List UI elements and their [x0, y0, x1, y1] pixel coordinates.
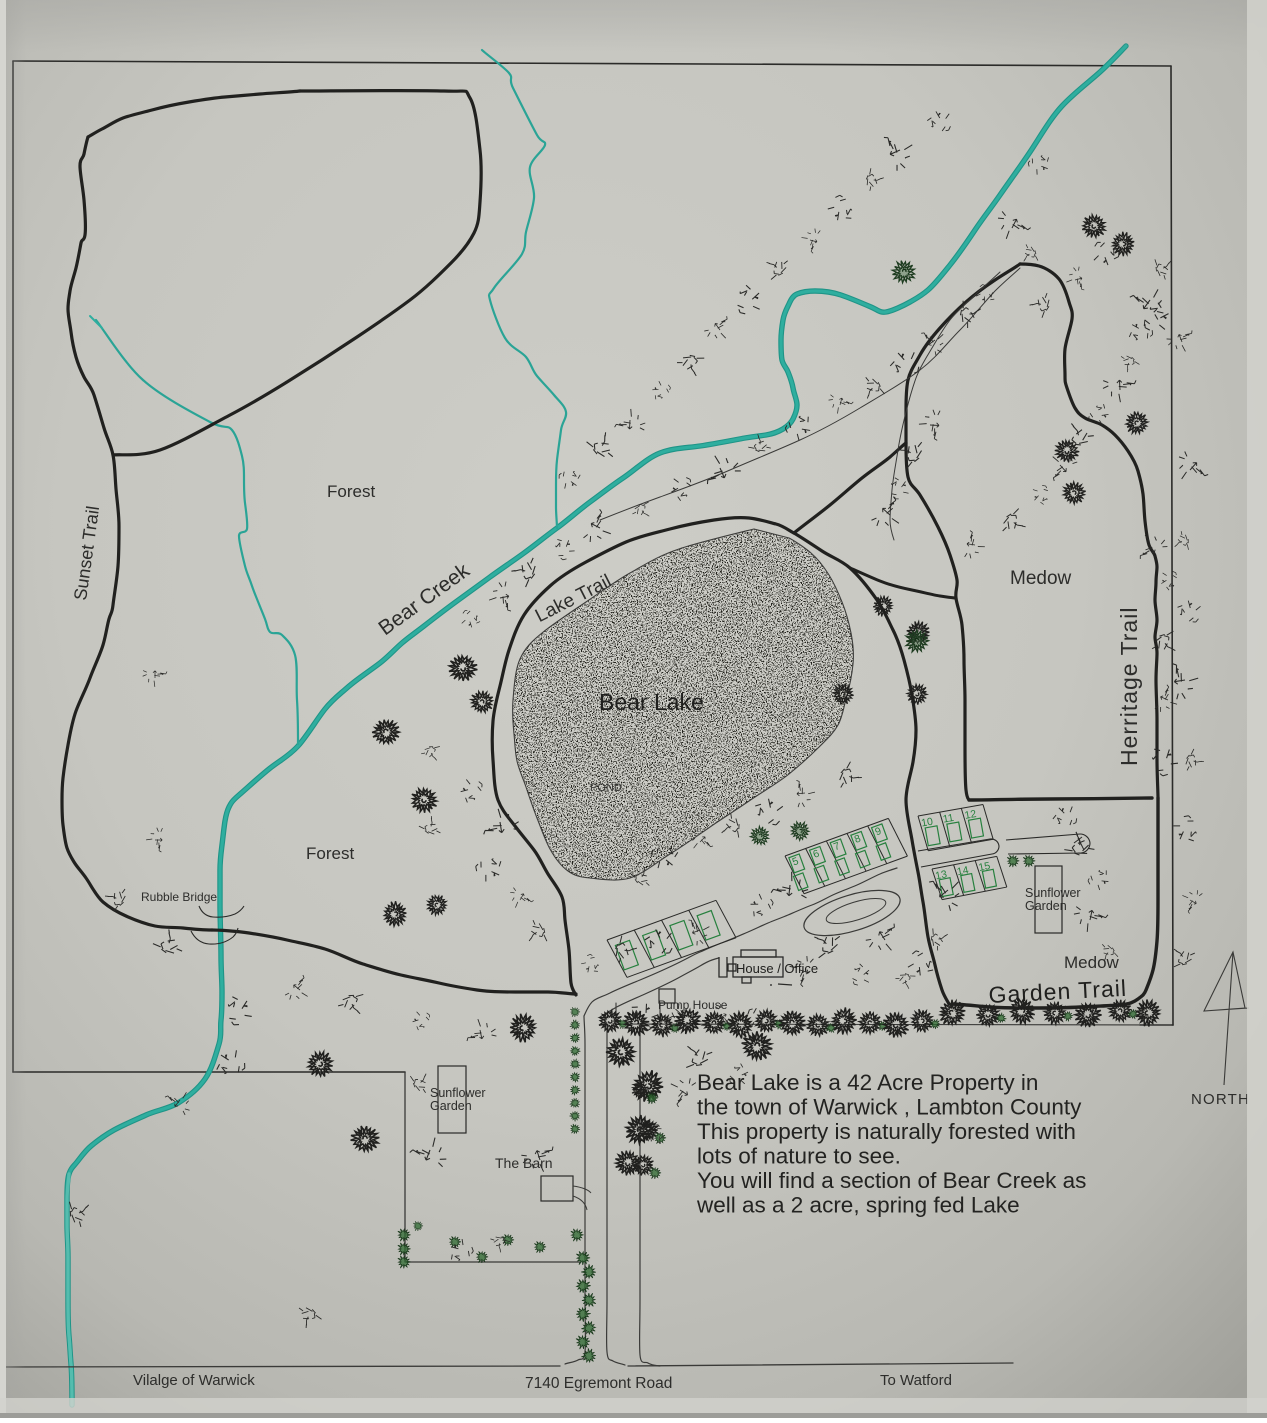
svg-text:7140 Egremont Road: 7140 Egremont Road [525, 1375, 672, 1392]
svg-text:The Barn: The Barn [495, 1155, 553, 1171]
svg-text:Forest: Forest [327, 482, 375, 501]
svg-text:Sunflower: Sunflower [1025, 886, 1081, 900]
svg-text:Herritage Trail: Herritage Trail [1116, 607, 1142, 766]
svg-text:10: 10 [920, 816, 934, 830]
svg-text:12: 12 [964, 808, 978, 822]
svg-text:Medow: Medow [1010, 568, 1072, 589]
svg-text:Forest: Forest [306, 844, 354, 863]
svg-text:House / Office: House / Office [736, 961, 818, 976]
svg-text:POND: POND [590, 782, 622, 794]
svg-text:Garden: Garden [1025, 899, 1067, 913]
svg-text:14: 14 [956, 864, 970, 878]
svg-text:Vilalge of Warwick: Vilalge of Warwick [133, 1372, 255, 1389]
svg-text:To Watford: To Watford [880, 1372, 952, 1389]
svg-text:11: 11 [942, 812, 955, 826]
svg-text:15: 15 [978, 860, 992, 874]
svg-text:NORTH: NORTH [1191, 1091, 1250, 1108]
svg-text:Rubble Bridge: Rubble Bridge [141, 890, 217, 904]
svg-text:13: 13 [934, 868, 948, 882]
svg-text:Sunflower: Sunflower [430, 1086, 486, 1100]
svg-text:Bear Lake: Bear Lake [599, 689, 704, 715]
svg-text:Pump House: Pump House [658, 998, 728, 1012]
svg-text:Medow: Medow [1064, 953, 1120, 972]
svg-text:Garden: Garden [430, 1099, 472, 1113]
